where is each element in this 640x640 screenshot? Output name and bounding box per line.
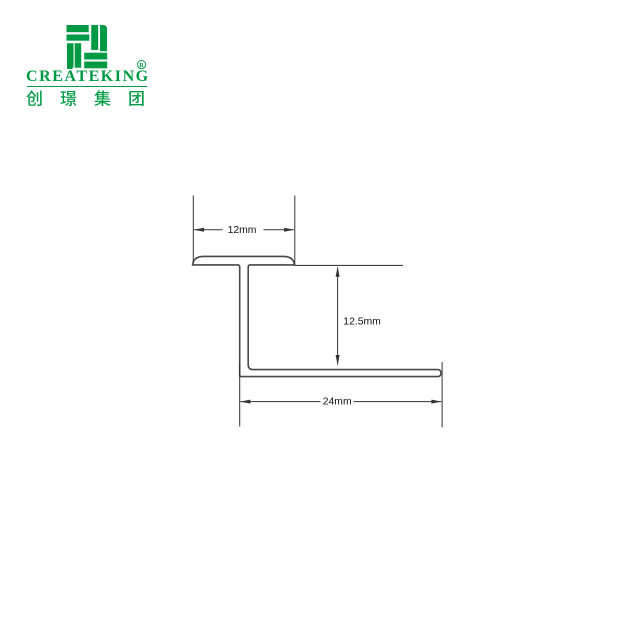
svg-text:12mm: 12mm (228, 225, 257, 236)
svg-text:12.5mm: 12.5mm (343, 316, 381, 327)
svg-text:24mm: 24mm (323, 397, 352, 408)
